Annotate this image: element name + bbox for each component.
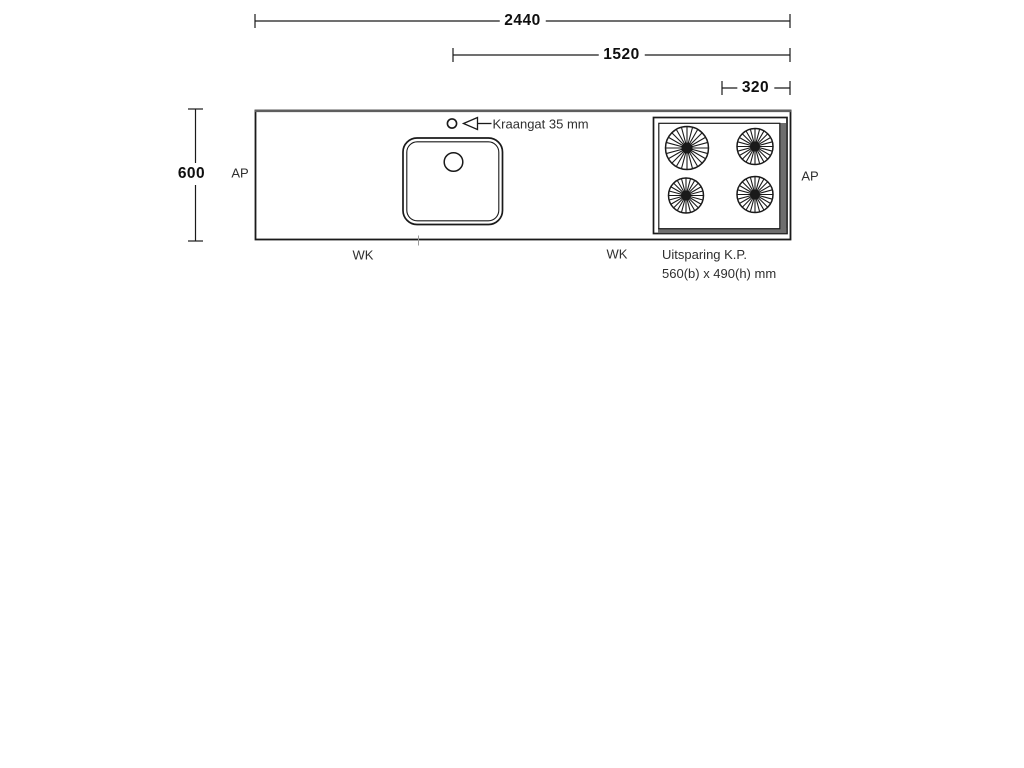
label-wk-left: WK xyxy=(353,247,374,262)
label-cutout-line2: 560(b) x 490(h) mm xyxy=(662,266,776,281)
burner xyxy=(666,127,709,170)
dimension-depth-value: 600 xyxy=(176,163,207,185)
hob xyxy=(654,118,788,234)
burner xyxy=(737,177,773,213)
label-cutout-line1: Uitsparing K.P. xyxy=(662,247,747,262)
label-ap-right: AP xyxy=(801,169,818,184)
burner xyxy=(669,178,704,213)
hob-bevel-right xyxy=(780,123,787,233)
label-ap-left: AP xyxy=(231,165,248,180)
dimension-span-value: 1520 xyxy=(598,47,644,63)
faucet-hole xyxy=(447,119,456,128)
label-wk-mid: WK xyxy=(607,246,628,261)
dimension-total-value: 2440 xyxy=(499,13,545,29)
sink xyxy=(403,138,503,225)
drawing-canvas: 2440 1520 320 600 AP AP WK WK Kraangat 3… xyxy=(0,0,1024,768)
dimension-offset-value: 320 xyxy=(737,80,774,96)
burner xyxy=(737,129,773,165)
label-faucet-note: Kraangat 35 mm xyxy=(493,116,589,131)
sink-outer-rim xyxy=(403,138,503,225)
